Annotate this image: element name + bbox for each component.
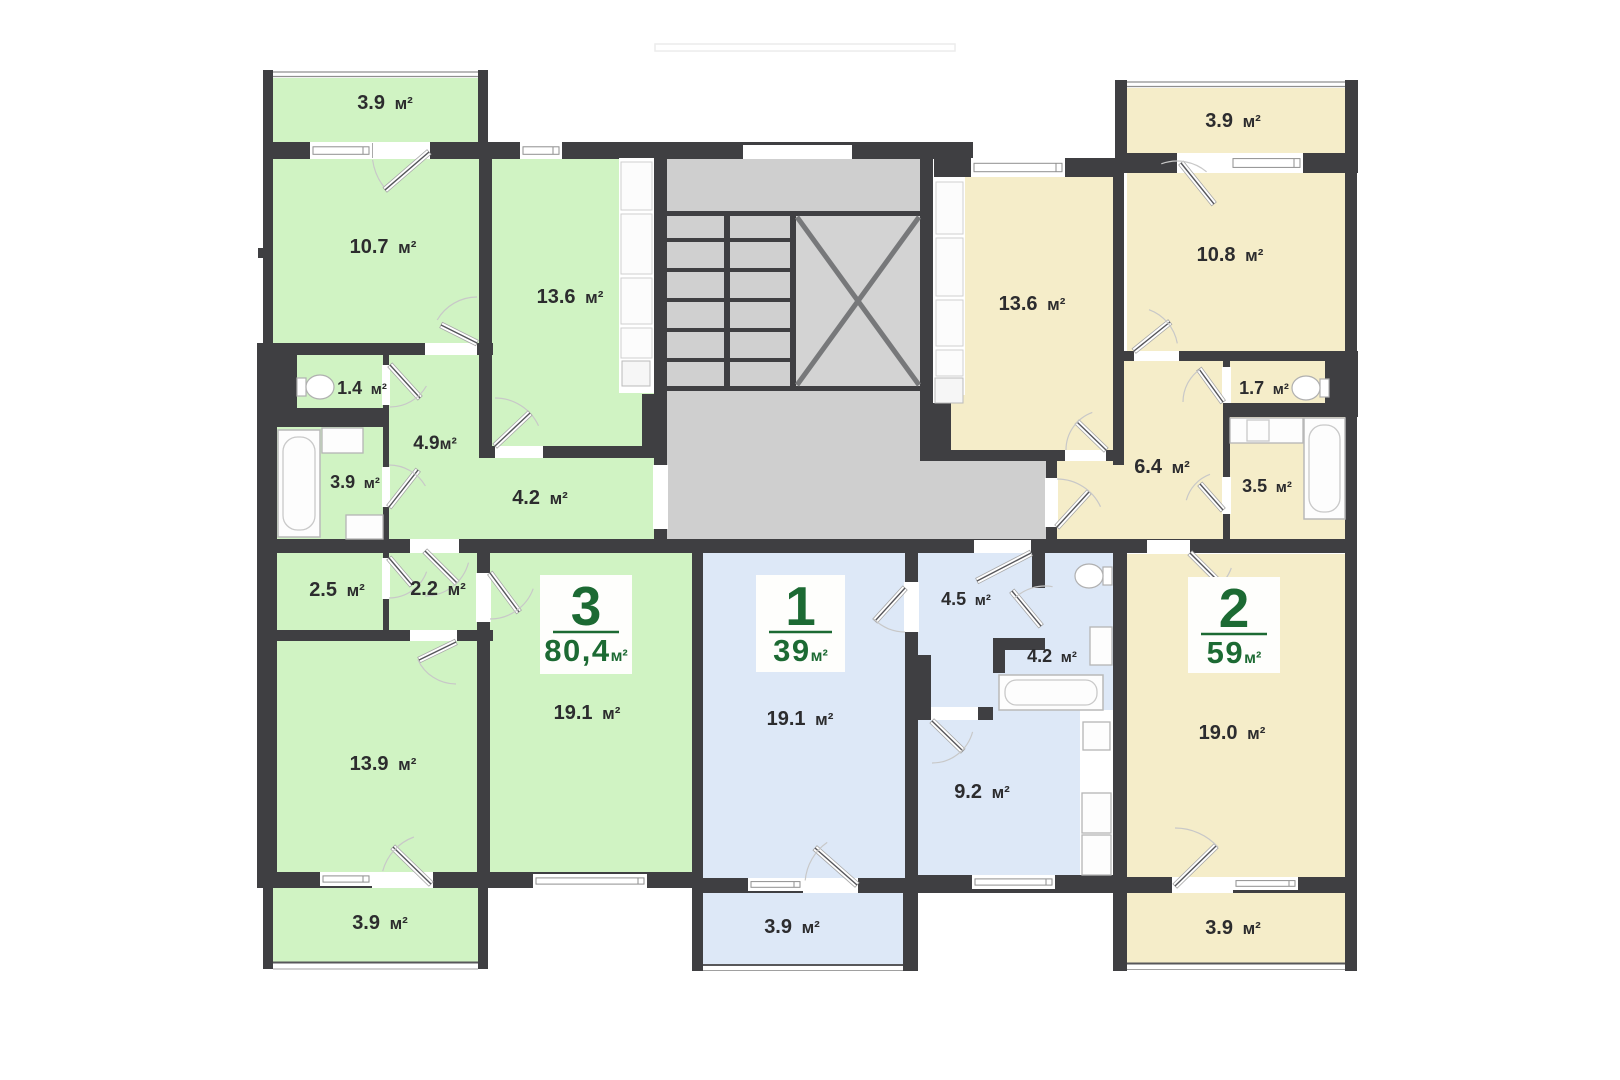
svg-text:13.6 м²: 13.6 м² [537,286,604,308]
svg-text:13.9 м²: 13.9 м² [350,753,417,775]
svg-text:3.9 м²: 3.9 м² [352,912,408,934]
svg-text:13.6 м²: 13.6 м² [999,293,1066,315]
svg-text:3.5 м²: 3.5 м² [1242,476,1292,496]
svg-text:4.9м²: 4.9м² [413,433,457,454]
svg-text:1.4 м²: 1.4 м² [337,378,387,398]
svg-text:3.9 м²: 3.9 м² [1205,917,1261,939]
svg-text:3.9 м²: 3.9 м² [1205,110,1261,132]
svg-text:2.5 м²: 2.5 м² [309,579,365,601]
svg-text:3.9 м²: 3.9 м² [330,472,380,492]
svg-text:1.7 м²: 1.7 м² [1239,378,1289,398]
svg-text:4.2 м²: 4.2 м² [512,487,568,509]
svg-text:3.9 м²: 3.9 м² [764,916,820,938]
svg-text:2.2 м²: 2.2 м² [410,578,466,600]
svg-text:3: 3 [571,575,602,637]
svg-text:4.5 м²: 4.5 м² [941,589,991,609]
svg-text:4.2 м²: 4.2 м² [1027,646,1077,666]
svg-text:19.1 м²: 19.1 м² [554,702,621,724]
svg-text:10.8 м²: 10.8 м² [1197,244,1264,266]
svg-text:1: 1 [785,575,816,637]
svg-text:19.1 м²: 19.1 м² [767,708,834,730]
svg-text:9.2 м²: 9.2 м² [954,781,1010,803]
svg-text:3.9 м²: 3.9 м² [357,92,413,114]
svg-text:2: 2 [1219,577,1250,639]
svg-text:19.0 м²: 19.0 м² [1199,722,1266,744]
svg-text:10.7 м²: 10.7 м² [350,236,417,258]
svg-text:6.4 м²: 6.4 м² [1134,456,1190,478]
